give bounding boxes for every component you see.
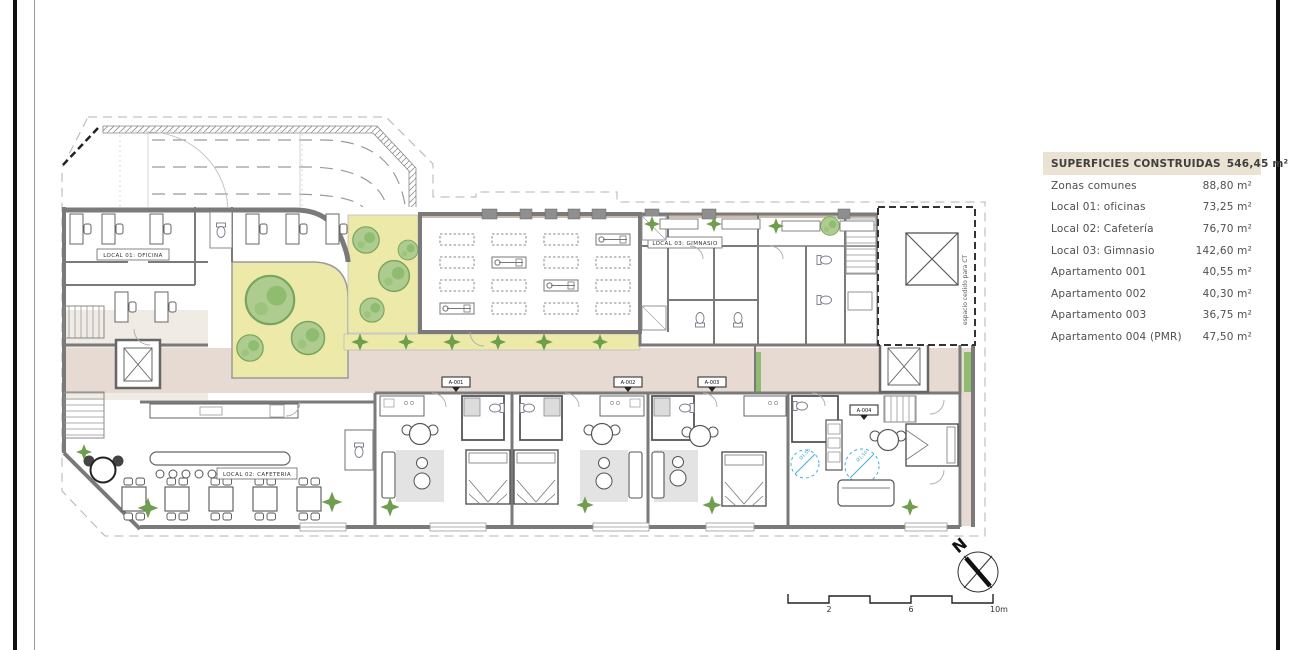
legend-row-label: Local 03: Gimnasio [1051, 245, 1155, 257]
svg-text:LOCAL 01: OFICINA: LOCAL 01: OFICINA [103, 253, 162, 259]
ct-note-label: espacio cedido para CT [962, 255, 969, 325]
legend-row-value: 36,75 m² [1203, 309, 1252, 321]
legend-row-label: Apartamento 003 [1051, 309, 1146, 321]
bed-icon [722, 452, 766, 506]
office-room-label: LOCAL 01: OFICINA [97, 249, 169, 260]
scale-tick-label: 6 [908, 605, 913, 614]
legend-row-value: 73,25 m² [1203, 201, 1252, 213]
svg-text:LOCAL 02: CAFETERIA: LOCAL 02: CAFETERIA [223, 472, 291, 478]
apartment-tag-label: A-003 [705, 380, 720, 386]
legend-row-label: Apartamento 004 (PMR) [1051, 331, 1182, 343]
legend-row-label: Zonas comunes [1051, 180, 1137, 192]
scale-bar: 2 6 10m [788, 594, 1008, 614]
tree-icon [398, 240, 418, 260]
legend-row: Apartamento 004 (PMR) 47,50 m² [1043, 326, 1261, 348]
apartment-tag-label: A-004 [857, 408, 872, 414]
legend-row: Zonas comunes 88,80 m² [1043, 175, 1261, 197]
bed-icon [906, 424, 958, 466]
bed-icon [514, 450, 558, 504]
legend-row-value: 47,50 m² [1203, 331, 1252, 343]
gym-bench-icon [492, 257, 526, 268]
stair-icon [64, 306, 104, 338]
legend-row-value: 76,70 m² [1203, 223, 1252, 235]
legend-row-label: Local 02: Cafetería [1051, 223, 1154, 235]
legend-row: Apartamento 003 36,75 m² [1043, 305, 1261, 327]
stair-icon [64, 392, 104, 438]
tree-icon [237, 335, 263, 361]
svg-text:LOCAL 03: GIMNASIO: LOCAL 03: GIMNASIO [652, 241, 718, 247]
stair-icon [884, 396, 916, 422]
tree-icon [360, 298, 384, 322]
legend-header-label: SUPERFICIES CONSTRUIDAS [1051, 158, 1221, 170]
driveway [62, 126, 416, 212]
ct-space: espacio cedido para CT [878, 207, 975, 345]
legend-header-row: SUPERFICIES CONSTRUIDAS 546,45 m² [1043, 152, 1261, 175]
scale-tick-label: 10m [990, 605, 1008, 614]
legend-row: Apartamento 002 40,30 m² [1043, 283, 1261, 305]
tree-icon [379, 261, 410, 292]
legend-row: Local 02: Cafetería 76,70 m² [1043, 218, 1261, 240]
apartment-tag-label: A-002 [621, 380, 636, 386]
north-arrow-icon: N [948, 534, 998, 592]
legend-row-value: 142,60 m² [1196, 245, 1252, 257]
surface-legend: SUPERFICIES CONSTRUIDAS 546,45 m² Zonas … [1043, 152, 1261, 348]
scale-tick-label: 2 [826, 605, 831, 614]
legend-row-value: 40,30 m² [1203, 288, 1252, 300]
legend-row-label: Apartamento 002 [1051, 288, 1146, 300]
legend-row-value: 88,80 m² [1203, 180, 1252, 192]
elevator-left [116, 340, 160, 388]
cafeteria-room-label: LOCAL 02: CAFETERIA [217, 468, 297, 479]
gym-bench-icon [596, 234, 630, 245]
tree-icon [292, 322, 325, 355]
gym-bench-icon [440, 303, 474, 314]
legend-row-value: 40,55 m² [1203, 266, 1252, 278]
legend-row: Local 01: oficinas 73,25 m² [1043, 197, 1261, 219]
tree-icon [246, 276, 294, 324]
legend-header-value: 546,45 m² [1227, 158, 1289, 170]
gym-bench-icon [544, 280, 578, 291]
legend-row: Local 03: Gimnasio 142,60 m² [1043, 240, 1261, 262]
north-label: N [948, 534, 970, 557]
apartment-tag-label: A-001 [449, 380, 464, 386]
tree-icon [821, 217, 840, 236]
bed-icon [466, 450, 510, 504]
tree-icon [353, 227, 379, 253]
legend-row: Apartamento 001 40,55 m² [1043, 261, 1261, 283]
legend-row-label: Local 01: oficinas [1051, 201, 1146, 213]
legend-row-label: Apartamento 001 [1051, 266, 1146, 278]
elevator-right [880, 340, 928, 392]
